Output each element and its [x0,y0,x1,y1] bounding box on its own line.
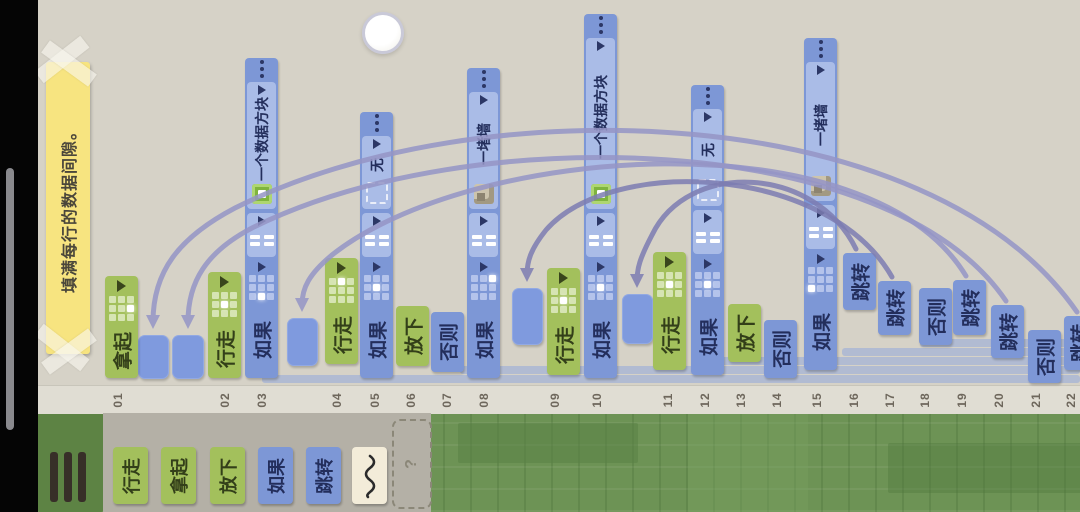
play-icon [220,276,229,288]
equals-bar [603,235,613,239]
line-number-15: 15 [810,392,824,407]
more-options-icon[interactable] [584,14,617,36]
equals-icon [586,227,615,253]
program-block-07-else[interactable]: 否则 [431,312,464,372]
grid-cell [606,275,613,282]
grid-cell [127,305,134,312]
grid-cell [560,288,567,295]
grid-cell [118,296,125,303]
palette-item-walk[interactable]: 行走 [113,447,148,504]
grid-cell [109,305,116,312]
grid-cell [212,310,219,317]
label-section: 否则 [764,320,797,378]
line-number-01: 01 [111,392,125,407]
block-label: 放下 [399,317,426,355]
grid-cell [373,293,380,300]
line-number-11: 11 [661,393,675,408]
play-icon [559,272,568,284]
equals-bar [809,227,819,231]
program-block-22-jump[interactable]: 跳转 [1064,316,1080,370]
circuit-patch [688,413,808,512]
jump-target-slot-2[interactable] [172,335,204,379]
grid-cell [489,293,496,300]
label-section: 跳转 [843,253,876,310]
line-number-16: 16 [847,392,861,407]
dot [706,94,710,98]
grid-cell [109,314,116,321]
label-section: 如果 [360,302,393,378]
palette-item-label: 跳转 [311,458,337,494]
grid-cell [695,281,702,288]
program-block-19-jump[interactable]: 跳转 [953,280,986,335]
equals-bar [472,242,482,246]
hint-sticky-note: 填满每行的数据间隙。 [46,62,90,354]
equals-bar [696,232,706,236]
line-number-14: 14 [770,392,784,407]
none-icon [697,179,719,201]
line-number-06: 06 [404,392,418,407]
equals-icon [469,227,498,253]
grid-cell [258,284,265,291]
grid-cell [258,293,265,300]
dot [375,128,379,132]
jump-target-slot-4[interactable] [512,288,543,345]
grid-cell [606,284,613,291]
equals-bar [365,235,375,239]
line-number-20: 20 [992,392,1006,407]
grid-cell [364,293,371,300]
line-number-02: 02 [218,392,232,407]
grid-cell [695,290,702,297]
block-label: 否则 [1031,337,1058,375]
grid-cell [606,293,613,300]
line-number-08: 08 [477,392,491,407]
grid-cell [267,284,274,291]
grid-cell [817,285,824,292]
operand-panel[interactable]: 一个数据方块 [586,38,615,209]
program-block-04-walk[interactable]: 行走 [325,258,358,364]
grid-cell [471,284,478,291]
block-label: 行走 [550,326,577,364]
operand-label: 无 [367,158,387,172]
block-label: 否则 [767,330,794,368]
palette-item-label: 行走 [118,458,144,494]
grid-cell [597,275,604,282]
grid-cell [704,272,711,279]
equals-icon [806,219,835,245]
grid-cell [267,293,274,300]
label-section: 行走 [208,319,241,378]
label-section: 否则 [431,312,464,372]
block-label: 如果 [248,321,275,359]
grid-cell [347,287,354,294]
equals-bar [472,235,482,239]
grid-cell [249,284,256,291]
dot [482,70,486,74]
grid-cell [675,272,682,279]
label-section: 放下 [396,306,429,366]
operand-panel[interactable]: 一堵墙 [469,92,498,209]
program-block-02-walk[interactable]: 行走 [208,272,241,378]
grid-cell [338,287,345,294]
label-section: 行走 [547,315,580,375]
operand-panel[interactable]: 一个数据方块 [247,82,276,209]
dot [482,77,486,81]
equals-bar [264,235,274,239]
block-label: 拿起 [108,331,135,369]
grid-cell [569,306,576,313]
jump-target-slot-3[interactable] [287,318,318,366]
more-options-icon[interactable] [804,38,837,60]
label-section: 如果 [691,299,724,375]
line-number-12: 12 [698,392,712,407]
grid-cell [551,288,558,295]
grid-cell [569,297,576,304]
more-options-icon[interactable] [245,58,278,80]
equals-bar [696,239,706,243]
direction-grid-icon [657,272,682,297]
direction-grid-icon [588,275,613,300]
grid-cell [551,306,558,313]
block-label: 否则 [922,297,949,335]
grid-cell [695,272,702,279]
block-label: 跳转 [846,262,873,300]
grid-cell [597,284,604,291]
line-number-19: 19 [955,392,969,407]
program-block-21-else[interactable]: 否则 [1028,330,1061,383]
grid-cell [364,275,371,282]
label-section: 否则 [1028,330,1061,383]
equals-bar [823,227,833,231]
grid-cell [657,281,664,288]
equals-icon [693,224,722,250]
dot [706,87,710,91]
palette-item-drop[interactable]: 放下 [210,447,245,504]
equals-icon [362,227,391,253]
grid-cell [551,297,558,304]
label-section: 如果 [804,294,837,370]
grid-cell [471,293,478,300]
more-options-icon[interactable] [360,112,393,134]
direction-grid-icon [471,275,496,300]
program-block-12-if[interactable]: 无如果 [691,85,724,375]
block-label: 行走 [656,315,683,353]
play-icon [665,256,674,268]
grid-cell [249,275,256,282]
dot [482,84,486,88]
grid-cell [221,310,228,317]
dropdown-icon [704,259,712,269]
operand-panel[interactable]: 无 [693,109,722,206]
grid-cell [675,290,682,297]
grid-cell [480,284,487,291]
dropdown-icon [258,216,266,226]
dot [706,101,710,105]
grid-cell [817,267,824,274]
jump-target-slot-5[interactable] [622,294,653,344]
program-block-17-jump[interactable]: 跳转 [878,281,911,335]
dot [819,54,823,58]
program-block-16-jump[interactable]: 跳转 [843,253,876,310]
grid-cell [221,292,228,299]
databox-icon [252,184,272,204]
label-section: 如果 [584,302,617,378]
equals-bar [365,242,375,246]
circuit-patch [888,443,1080,493]
grid-cell [230,310,237,317]
direction-grid-icon [551,288,576,313]
play-icon [117,280,126,292]
line-number-05: 05 [368,392,382,407]
operand-label: 一堵墙 [474,123,494,165]
dot [260,67,264,71]
grid-cell [657,272,664,279]
label-section: 如果 [467,302,500,378]
dropdown-icon [817,254,825,264]
line-number-21: 21 [1029,392,1043,407]
grid-cell [347,296,354,303]
grid-cell [118,314,125,321]
grid-cell [588,275,595,282]
block-label: 否则 [434,323,461,361]
grid-cell [713,281,720,288]
grid-cell [373,275,380,282]
direction-grid-icon [364,275,389,300]
dropdown-icon [597,41,605,51]
help-slot[interactable]: ? [392,419,432,509]
block-label: 如果 [363,321,390,359]
operand-section: 无 [693,123,722,176]
line-number-07: 07 [440,392,454,407]
equals-icon [247,227,276,253]
grid-cell [258,275,265,282]
operand-panel[interactable]: 无 [362,136,391,209]
dropdown-icon [373,262,381,272]
more-options-icon[interactable] [467,68,500,90]
dropdown-icon [704,112,712,122]
equals-bar [710,239,720,243]
squiggle-icon [360,453,380,499]
jump-target-slot-1[interactable] [138,335,169,379]
side-slider-handle[interactable] [6,168,14,430]
label-section: 拿起 [105,323,138,378]
direction-grid-icon [109,296,134,321]
program-block-18-else[interactable]: 否则 [919,288,952,345]
help-question-mark: ? [403,459,421,469]
grid-cell [382,275,389,282]
label-section: 放下 [728,304,761,362]
operand-section: 一个数据方块 [586,52,615,181]
palette-item-pickup[interactable]: 拿起 [161,447,196,504]
grid-cell [666,290,673,297]
grid-cell [826,267,833,274]
grid-cell [230,301,237,308]
block-label: 行走 [211,329,238,367]
line-number-13: 13 [734,392,748,407]
more-options-icon[interactable] [691,85,724,107]
grid-cell [221,301,228,308]
program-block-14-else[interactable]: 否则 [764,320,797,378]
dot [260,74,264,78]
databox-icon [591,184,611,204]
line-number-03: 03 [255,392,269,407]
operand-section: 一个数据方块 [247,96,276,181]
dropdown-icon [817,65,825,75]
grid-cell [127,314,134,321]
dropdown-icon [258,262,266,272]
dropdown-icon [373,139,381,149]
dropdown-icon [373,216,381,226]
operand-label: 无 [698,143,718,157]
menu-button[interactable] [50,452,86,502]
grid-cell [489,275,496,282]
grid-cell [826,285,833,292]
grid-cell [569,288,576,295]
wall-icon [811,176,831,196]
dropdown-icon [597,216,605,226]
dot [375,114,379,118]
grid-cell [588,293,595,300]
block-label: 跳转 [881,289,908,327]
program-block-15-if[interactable]: 一堵墙如果 [804,38,837,370]
grid-cell [817,276,824,283]
program-block-06-drop[interactable]: 放下 [396,306,429,366]
operand-section: 一堵墙 [469,106,498,181]
grid-cell [808,276,815,283]
grid-cell [127,296,134,303]
equals-bar [809,234,819,238]
dropdown-icon [817,208,825,218]
palette-item-label: 如果 [263,458,289,494]
grid-cell [118,305,125,312]
scope-bar [705,357,1080,365]
grid-cell [808,267,815,274]
grid-cell [364,284,371,291]
line-number-09: 09 [548,392,562,407]
dot [819,40,823,44]
grid-cell [329,278,336,285]
dot [599,16,603,20]
palette-item-label: 放下 [215,458,241,494]
grid-cell [489,284,496,291]
equals-bar [486,242,496,246]
dropdown-icon [480,216,488,226]
label-section: 如果 [245,302,278,378]
program-block-13-drop[interactable]: 放下 [728,304,761,362]
dot [599,23,603,27]
equals-bar [603,242,613,246]
direction-grid-icon [249,275,274,300]
none-icon [366,182,388,204]
equals-bar [379,235,389,239]
palette-item-any[interactable] [352,447,387,504]
equals-bar [486,235,496,239]
grid-cell [657,290,664,297]
block-label: 跳转 [956,288,983,326]
line-number-10: 10 [590,392,604,407]
grid-cell [329,296,336,303]
program-block-03-if[interactable]: 一个数据方块如果 [245,58,278,378]
program-block-11-walk[interactable]: 行走 [653,252,686,370]
program-block-20-jump[interactable]: 跳转 [991,305,1024,358]
equals-bar [379,242,389,246]
program-block-01-pickup[interactable]: 拿起 [105,276,138,378]
program-block-10-if[interactable]: 一个数据方块如果 [584,14,617,378]
dot [599,30,603,34]
palette-item-jump[interactable]: 跳转 [306,447,341,504]
comparator-panel[interactable] [586,213,615,257]
equals-bar [589,242,599,246]
operand-section: 一堵墙 [806,76,835,173]
grid-cell [666,272,673,279]
equals-bar [589,235,599,239]
grid-cell [230,292,237,299]
grid-cell [347,278,354,285]
operand-label: 一堵墙 [811,104,831,146]
block-label: 如果 [587,321,614,359]
grid-cell [597,293,604,300]
comparator-panel[interactable] [469,213,498,257]
comparator-panel[interactable] [806,205,835,249]
comparator-panel[interactable] [362,213,391,257]
block-label: 如果 [807,313,834,351]
operand-label: 一个数据方块 [591,75,611,159]
grid-cell [212,292,219,299]
block-label: 如果 [470,321,497,359]
block-label: 如果 [694,318,721,356]
label-section: 跳转 [878,281,911,335]
dropdown-icon [480,95,488,105]
grid-cell [480,275,487,282]
label-section: 跳转 [1064,316,1080,370]
grid-cell [713,272,720,279]
wall-icon [474,184,494,204]
program-block-05-if[interactable]: 无如果 [360,112,393,378]
comparator-panel[interactable] [693,210,722,254]
grid-cell [704,290,711,297]
direction-grid-icon [329,278,354,303]
grid-cell [826,276,833,283]
grid-cell [338,278,345,285]
palette-item-if[interactable]: 如果 [258,447,293,504]
operand-panel[interactable]: 一堵墙 [806,62,835,201]
grid-cell [666,281,673,288]
line-number-ruler: 0102030405060708091011121314151617181920… [38,385,1080,414]
comparator-panel[interactable] [247,213,276,257]
grid-cell [471,275,478,282]
grid-cell [338,296,345,303]
line-number-18: 18 [918,392,932,407]
game-screen: 填满每行的数据间隙。 01020304050607080910111213141… [0,0,1080,512]
label-section: 行走 [325,305,358,364]
dropdown-icon [597,262,605,272]
program-block-09-walk[interactable]: 行走 [547,268,580,375]
block-label: 跳转 [994,312,1021,350]
block-label: 放下 [731,314,758,352]
floating-orb [362,12,404,54]
circuit-patch [458,423,638,463]
line-number-17: 17 [883,392,897,407]
equals-bar [250,242,260,246]
direction-grid-icon [212,292,237,317]
dropdown-icon [480,262,488,272]
grid-cell [382,284,389,291]
grid-cell [329,287,336,294]
grid-cell [808,285,815,292]
equals-bar [264,242,274,246]
program-block-08-if[interactable]: 一堵墙如果 [467,68,500,378]
dropdown-icon [258,85,266,95]
